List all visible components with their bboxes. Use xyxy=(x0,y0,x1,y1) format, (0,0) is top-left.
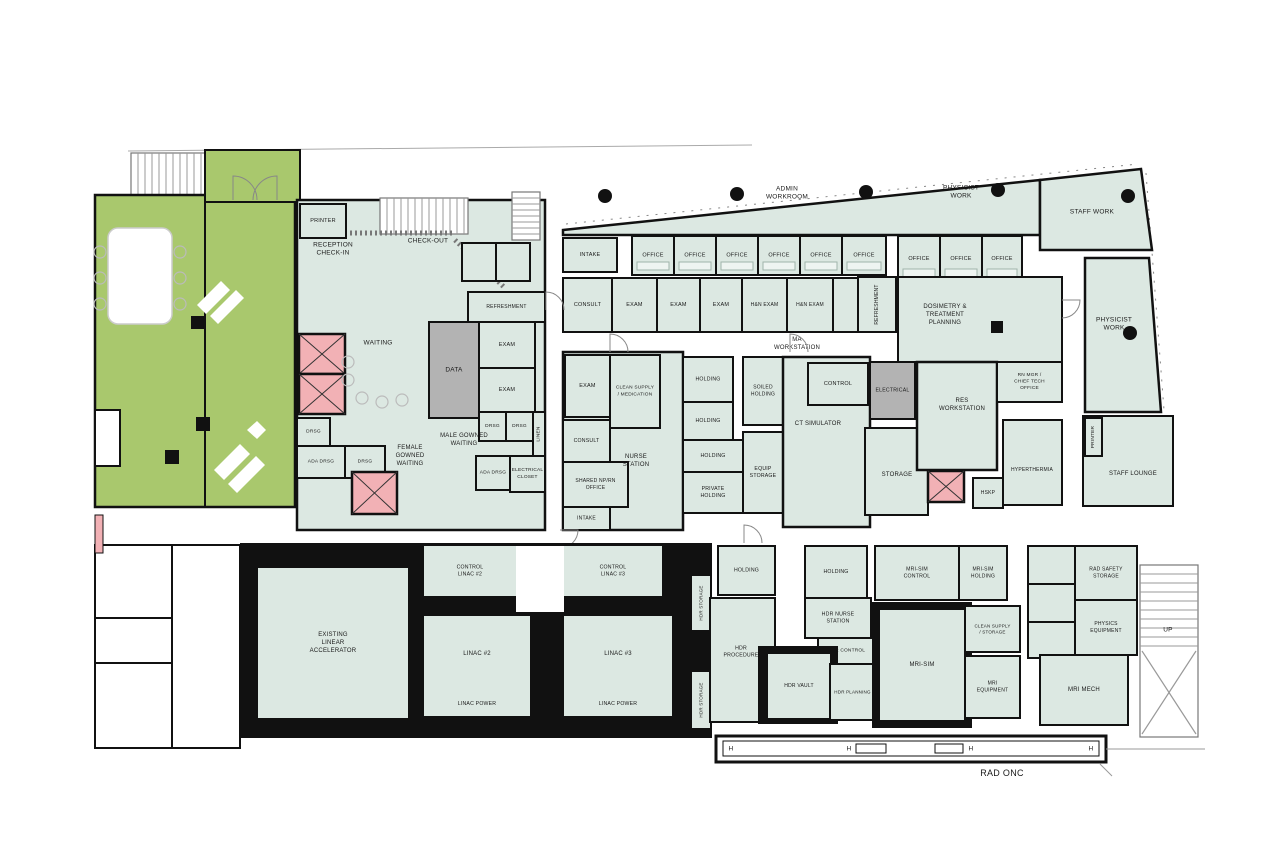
desk xyxy=(679,262,711,270)
label-check-out: CHECK-OUT xyxy=(408,238,448,245)
room-office-label: OFFICE xyxy=(908,256,929,262)
column-dot xyxy=(859,185,873,199)
edge-elevator xyxy=(95,515,103,553)
res-workstation-area xyxy=(917,362,997,470)
desk xyxy=(945,269,977,277)
room-consult-label: CONSULT xyxy=(574,438,600,444)
room-printer-label: PRINTER xyxy=(310,218,336,224)
room-exam-label: EXAM xyxy=(713,302,730,308)
room-physics-equipment-label: PHYSICSEQUIPMENT xyxy=(1090,621,1122,634)
room-office-label: OFFICE xyxy=(853,253,874,259)
room-exam-label: EXAM xyxy=(626,302,643,308)
desk xyxy=(847,262,881,270)
desk xyxy=(805,262,837,270)
column-dot xyxy=(598,189,612,203)
room-dosimetry-treatment-planning-label: DOSIMETRY &TREATMENTPLANNING xyxy=(923,304,966,326)
room-refreshment-label: REFRESHMENT xyxy=(486,304,526,310)
label-h: H xyxy=(969,746,974,753)
room-office-label: OFFICE xyxy=(684,253,705,259)
room-mri-sim-label: MRI-SIM xyxy=(909,662,934,668)
room-holding-label: HOLDING xyxy=(695,377,720,383)
door-swing xyxy=(546,292,564,310)
room-control-linac-2-label: CONTROLLINAC #2 xyxy=(457,565,484,578)
label-admin-workroom: ADMINWORKROOM xyxy=(766,185,808,200)
room-clean-supply-storage-label: CLEAN SUPPLY/ STORAGE xyxy=(974,623,1010,634)
floor-plan-svg: STAFF WORKPHYSICISTWORKADMINWORKROOMPHYS… xyxy=(0,0,1280,853)
room-office-label: OFFICE xyxy=(726,253,747,259)
stair-up xyxy=(1140,565,1198,737)
room-drsg-label: DRSG xyxy=(358,459,373,465)
room-dosimetry-treatment-planning xyxy=(898,277,1062,362)
existing-rooms xyxy=(95,545,240,748)
room-office-label: OFFICE xyxy=(950,256,971,262)
room-hdr-vault-label: HDR VAULT xyxy=(784,683,813,689)
door-swing xyxy=(1062,300,1080,318)
room-hyperthermia-label: HYPERTHERMIA xyxy=(1011,467,1054,473)
room-control-label: CONTROL xyxy=(824,381,852,387)
room-hdr-planning-label: HDR PLANNING xyxy=(834,690,871,695)
toilet-room xyxy=(1028,546,1075,584)
room-storage-label: STORAGE xyxy=(882,472,913,478)
room-holding-label: HOLDING xyxy=(695,418,720,424)
column-square xyxy=(165,450,179,464)
room-holding-label: HOLDING xyxy=(734,568,759,574)
label-up: UP xyxy=(1163,627,1172,634)
column-square xyxy=(991,321,1003,333)
label-reception-check-in: RECEPTIONCHECK-IN xyxy=(313,241,353,256)
column-dot xyxy=(991,183,1005,197)
room-h-n-exam-label: H&N EXAM xyxy=(751,302,779,308)
label-h: H xyxy=(1089,746,1094,753)
wall-line xyxy=(1100,764,1112,776)
room-h-n-exam-label: H&N EXAM xyxy=(796,302,824,308)
label-h: H xyxy=(847,746,852,753)
label-h: H xyxy=(729,746,734,753)
column-dot xyxy=(730,187,744,201)
column-square xyxy=(196,417,210,431)
room-linac-power-label: LINAC POWER xyxy=(458,701,497,707)
plan-caption: RAD ONC xyxy=(962,768,1042,778)
room-soiled-holding-label: SOILEDHOLDING xyxy=(751,385,775,398)
label-staff-work: STAFF WORK xyxy=(1070,209,1115,216)
room-office-label: OFFICE xyxy=(991,256,1012,262)
room-private-holding-label: PRIVATEHOLDING xyxy=(700,486,725,499)
toilet-room xyxy=(1028,584,1075,622)
label-ct-simulator: CT SIMULATOR xyxy=(795,421,842,427)
room-drsg-label: DRSG xyxy=(485,423,500,429)
room-drsg-label: DRSG xyxy=(306,429,321,435)
room-holding-label: HOLDING xyxy=(823,569,848,575)
room-linac-3-label: LINAC #3 xyxy=(604,651,632,657)
room-electrical-label: ELECTRICAL xyxy=(876,388,910,394)
toilet-room xyxy=(1028,622,1075,658)
desk xyxy=(987,269,1017,277)
toilet-room xyxy=(462,243,496,281)
room-office-label: OFFICE xyxy=(642,253,663,259)
label-ma-workstation: MAWORKSTATION xyxy=(774,337,820,351)
room-linen-label: LINEN xyxy=(536,426,542,441)
toilet-room xyxy=(496,243,530,281)
room-office-label: OFFICE xyxy=(768,253,789,259)
room-exam-label: EXAM xyxy=(579,383,596,389)
room-hdr-storage-label: HDR STORAGE xyxy=(699,682,704,717)
room-ada-drsg-label: ADA DRSG xyxy=(308,459,334,465)
room-printer-label: PRINTER xyxy=(1090,425,1096,448)
column-dot xyxy=(1123,326,1137,340)
room-exam-label: EXAM xyxy=(670,302,687,308)
desk xyxy=(763,262,795,270)
physicist-work-south xyxy=(1085,258,1161,412)
room-intake-label: INTAKE xyxy=(580,252,601,258)
room-mri-sim-control-label: MRI-SIMCONTROL xyxy=(904,567,931,580)
room-consult-label: CONSULT xyxy=(574,302,602,308)
room-drsg-label: DRSG xyxy=(512,423,527,429)
room-linac-2-label: LINAC #2 xyxy=(463,651,491,657)
room-hdr-storage-label: HDR STORAGE xyxy=(699,585,704,620)
label-waiting: WAITING xyxy=(364,340,393,347)
desk xyxy=(721,262,753,270)
room-shape xyxy=(833,278,858,332)
room-mri-sim-holding-label: MRI-SIMHOLDING xyxy=(971,567,995,580)
room-mri-mech-label: MRI MECH xyxy=(1068,687,1100,693)
room-exam-label: EXAM xyxy=(499,342,516,348)
floor-plan-page: STAFF WORKPHYSICISTWORKADMINWORKROOMPHYS… xyxy=(0,0,1280,853)
green-vestibule xyxy=(205,150,300,202)
door-swing xyxy=(610,334,628,352)
room-hskp-label: HSKP xyxy=(981,490,996,496)
desk xyxy=(637,262,669,270)
door-swing xyxy=(744,525,762,543)
room-holding-label: HOLDING xyxy=(700,453,725,459)
column-dot xyxy=(1121,189,1135,203)
canopy xyxy=(716,736,1106,762)
vault-vestibule xyxy=(516,546,564,612)
desk xyxy=(903,269,935,277)
room-data-label: DATA xyxy=(445,367,463,374)
room-control-linac-3-label: CONTROLLINAC #3 xyxy=(600,565,627,578)
room-office-label: OFFICE xyxy=(810,253,831,259)
conference-table xyxy=(108,228,172,324)
room-ada-drsg-label: ADA DRSG xyxy=(480,470,506,476)
alcove xyxy=(95,410,120,466)
room-intake-label: INTAKE xyxy=(577,516,596,522)
lobby-stair xyxy=(380,198,468,234)
room-staff-lounge-label: STAFF LOUNGE xyxy=(1109,471,1157,477)
room-linac-power-label: LINAC POWER xyxy=(599,701,638,707)
column-square xyxy=(191,316,204,329)
label-nurse-station: NURSESTATION xyxy=(623,454,650,468)
room-rad-safety-storage-label: RAD SAFETYSTORAGE xyxy=(1089,567,1123,580)
room-refreshment-label: REFRESHMENT xyxy=(874,284,880,324)
room-hyperthermia xyxy=(1003,420,1062,505)
room-exam-label: EXAM xyxy=(499,387,516,393)
label-female-gowned-waiting: FEMALEGOWNEDWAITING xyxy=(396,445,425,467)
